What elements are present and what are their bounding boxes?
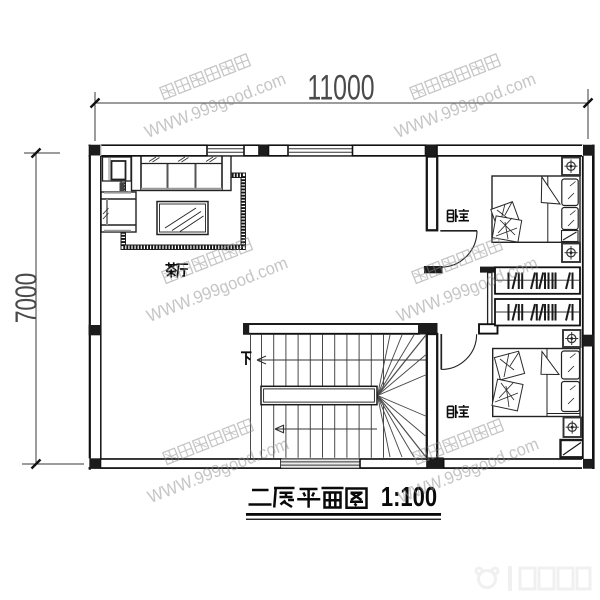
svg-text:11000: 11000 (307, 70, 374, 108)
svg-text:7000: 7000 (8, 273, 43, 323)
